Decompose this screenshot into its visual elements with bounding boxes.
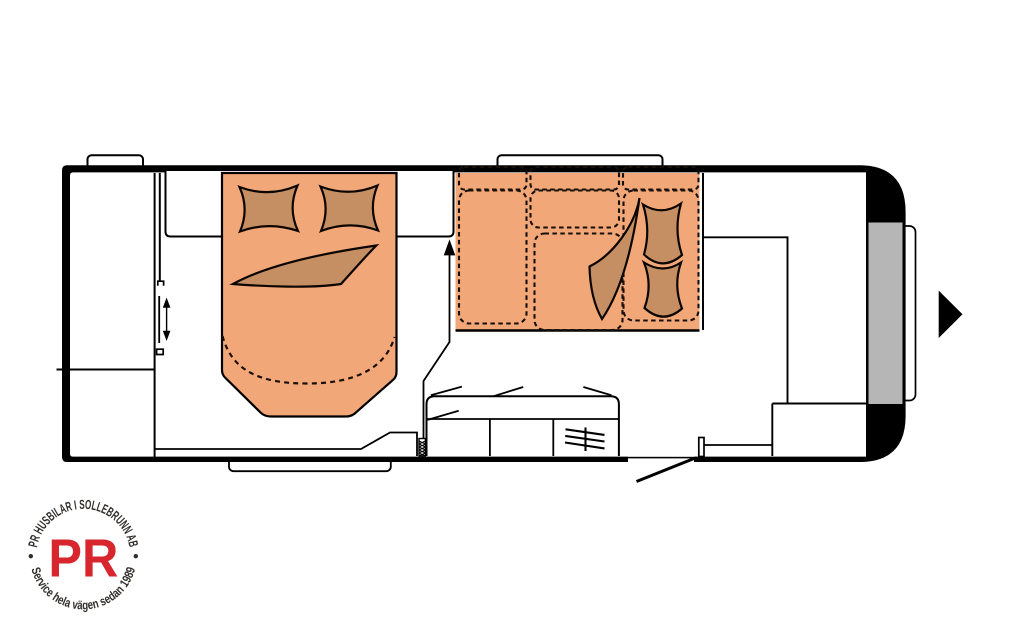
svg-text:PR: PR bbox=[48, 528, 118, 588]
